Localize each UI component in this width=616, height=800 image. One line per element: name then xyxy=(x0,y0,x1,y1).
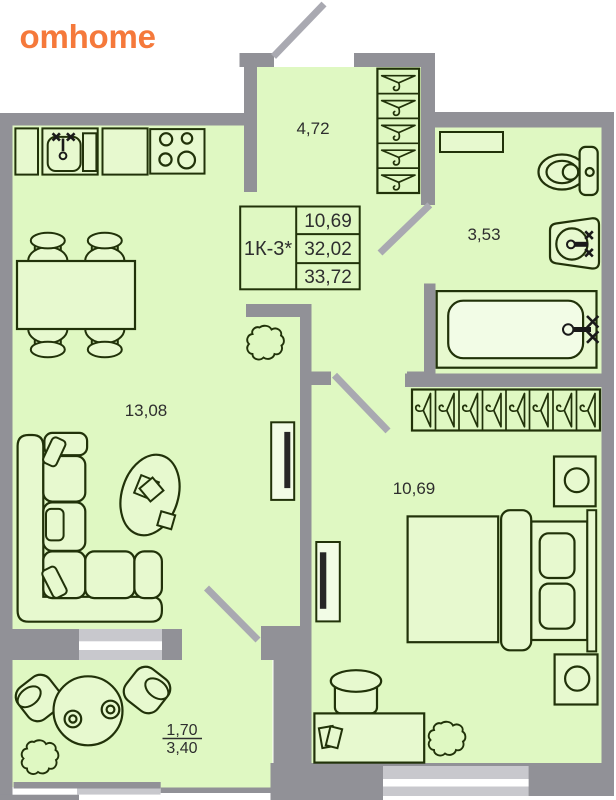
svg-text:32,02: 32,02 xyxy=(304,239,352,260)
svg-text:1К-3*: 1К-3* xyxy=(244,238,293,260)
svg-text:13,08: 13,08 xyxy=(125,401,168,420)
svg-text:1,70: 1,70 xyxy=(166,722,197,739)
svg-text:3,53: 3,53 xyxy=(467,225,500,244)
svg-text:33,72: 33,72 xyxy=(304,267,352,288)
svg-text:4,72: 4,72 xyxy=(296,119,329,138)
svg-text:10,69: 10,69 xyxy=(304,211,352,232)
svg-text:3,40: 3,40 xyxy=(166,740,197,757)
svg-text:omhome: omhome xyxy=(20,18,156,55)
svg-text:10,69: 10,69 xyxy=(393,479,436,498)
